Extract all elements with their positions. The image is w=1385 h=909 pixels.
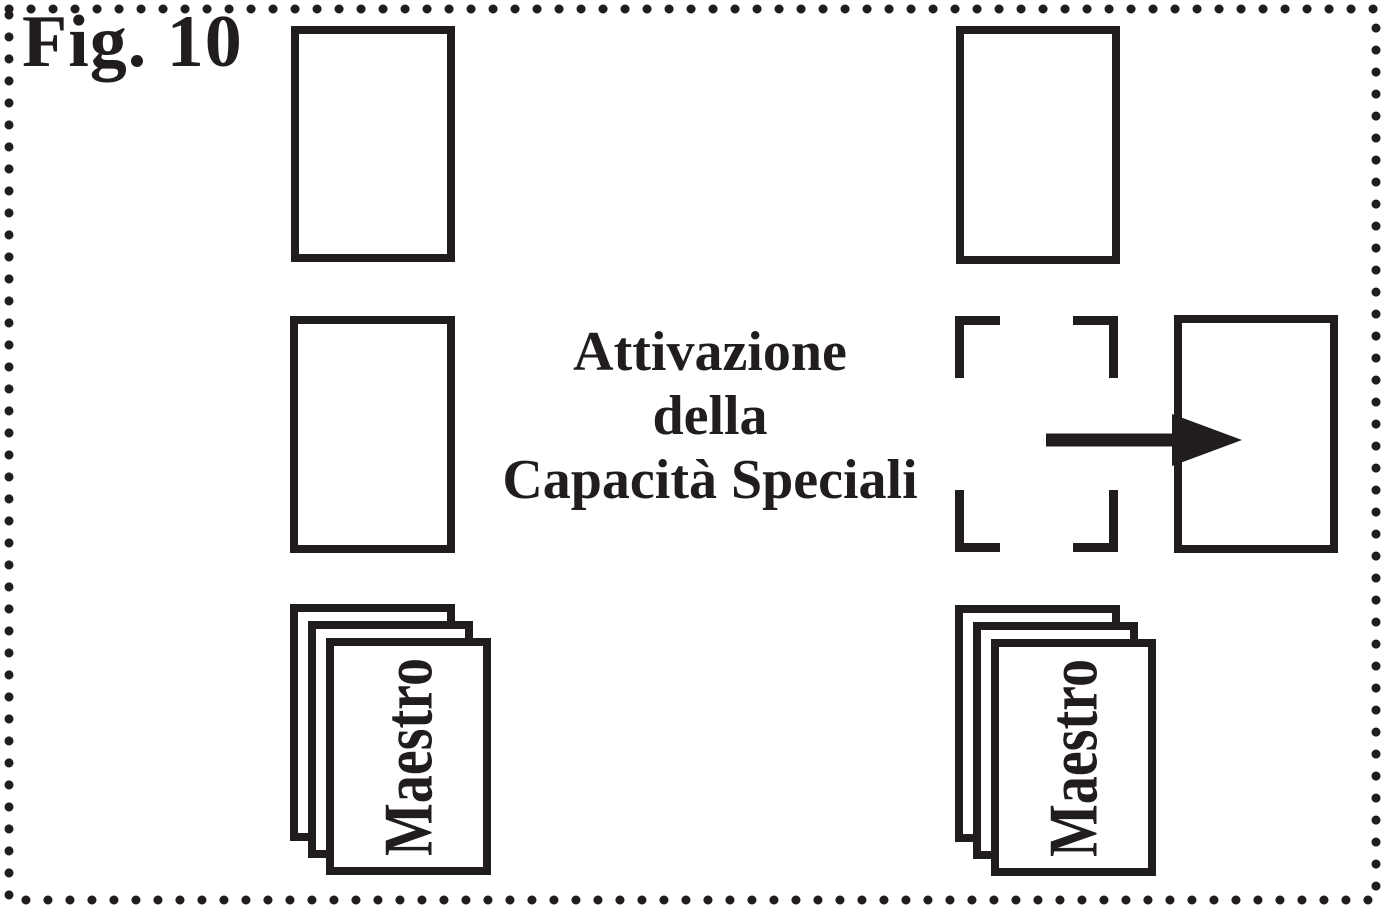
card-outline-top-right [956, 26, 1120, 264]
placeholder-corner-top-left [955, 316, 1000, 378]
caption: Attivazione della Capacità Speciali [460, 320, 960, 512]
deck-left: Maestro [290, 604, 492, 876]
card-outline-top-left [291, 26, 455, 262]
deck-card-front: Maestro [991, 639, 1156, 876]
figure-canvas: Fig. 10 Attivazione della Capacità Speci… [0, 0, 1385, 909]
placeholder-corner-bottom-left [955, 490, 1000, 552]
placeholder-corner-bottom-right [1073, 490, 1118, 552]
arrow-right-icon [1040, 408, 1250, 472]
deck-label: Maestro [1039, 659, 1109, 857]
caption-line-1: Attivazione [460, 320, 960, 384]
caption-line-2: della [460, 384, 960, 448]
deck-label: Maestro [374, 658, 444, 856]
placeholder-corner-top-right [1073, 316, 1118, 378]
card-outline-middle-left [290, 316, 455, 553]
caption-line-3: Capacità Speciali [460, 448, 960, 512]
figure-label: Fig. 10 [22, 2, 243, 83]
deck-card-front: Maestro [326, 638, 491, 875]
deck-right: Maestro [955, 605, 1157, 877]
arrow-head [1172, 414, 1242, 466]
